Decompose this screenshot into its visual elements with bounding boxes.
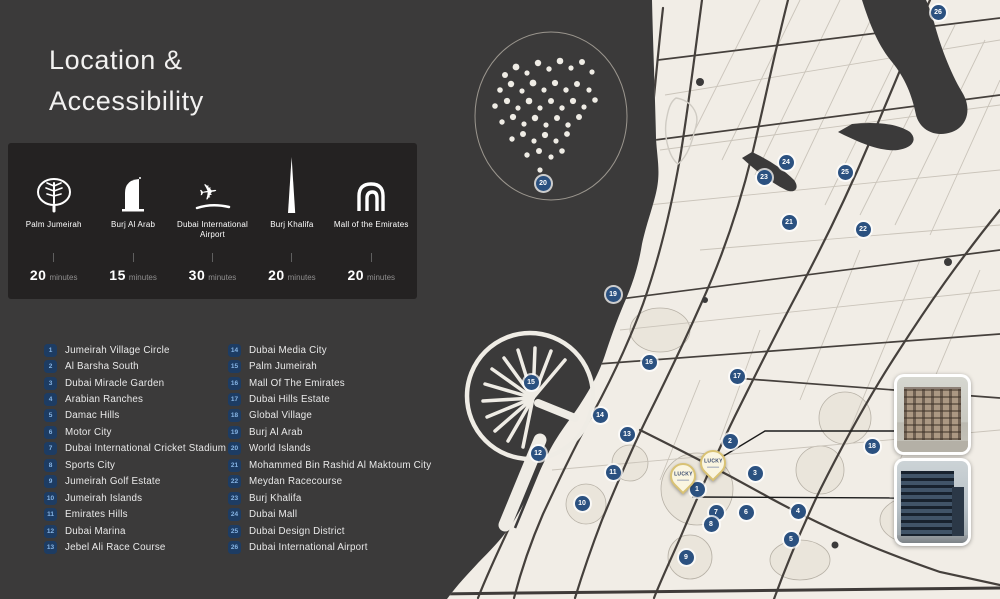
map-marker-14: 14 [593, 408, 608, 423]
project-photo-bottom [894, 458, 971, 546]
map-marker-3: 3 [748, 466, 763, 481]
map-marker-17: 17 [730, 369, 745, 384]
building-photo [897, 461, 968, 543]
map-marker-2: 2 [723, 434, 738, 449]
map-marker-9: 9 [679, 550, 694, 565]
map-marker-23: 23 [757, 170, 772, 185]
map-marker-20: 20 [536, 176, 551, 191]
map-marker-25: 25 [838, 165, 853, 180]
pin-label: LUCKY [674, 472, 693, 481]
map-marker-12: 12 [531, 446, 546, 461]
map-marker-24: 24 [779, 155, 794, 170]
brochure-page: { "page": { "title_line1": "Location &",… [0, 0, 1000, 599]
project-photo-top [894, 374, 971, 455]
map-marker-18: 18 [865, 439, 880, 454]
map-marker-10: 10 [575, 496, 590, 511]
map-marker-26: 26 [931, 5, 946, 20]
map-marker-8: 8 [704, 517, 719, 532]
map-marker-22: 22 [856, 222, 871, 237]
map-marker-4: 4 [791, 504, 806, 519]
pin-label: LUCKY [704, 459, 723, 468]
map-marker-21: 21 [782, 215, 797, 230]
map-marker-13: 13 [620, 427, 635, 442]
building-photo [897, 377, 968, 452]
map-marker-11: 11 [606, 465, 621, 480]
project-pin: LUCKY [695, 445, 732, 482]
map-marker-19: 19 [606, 287, 621, 302]
map-marker-layer: 1234567891011121314151617181920212223242… [0, 0, 1000, 599]
map-marker-6: 6 [739, 505, 754, 520]
map-marker-16: 16 [642, 355, 657, 370]
map-marker-15: 15 [524, 375, 539, 390]
map-marker-5: 5 [784, 532, 799, 547]
